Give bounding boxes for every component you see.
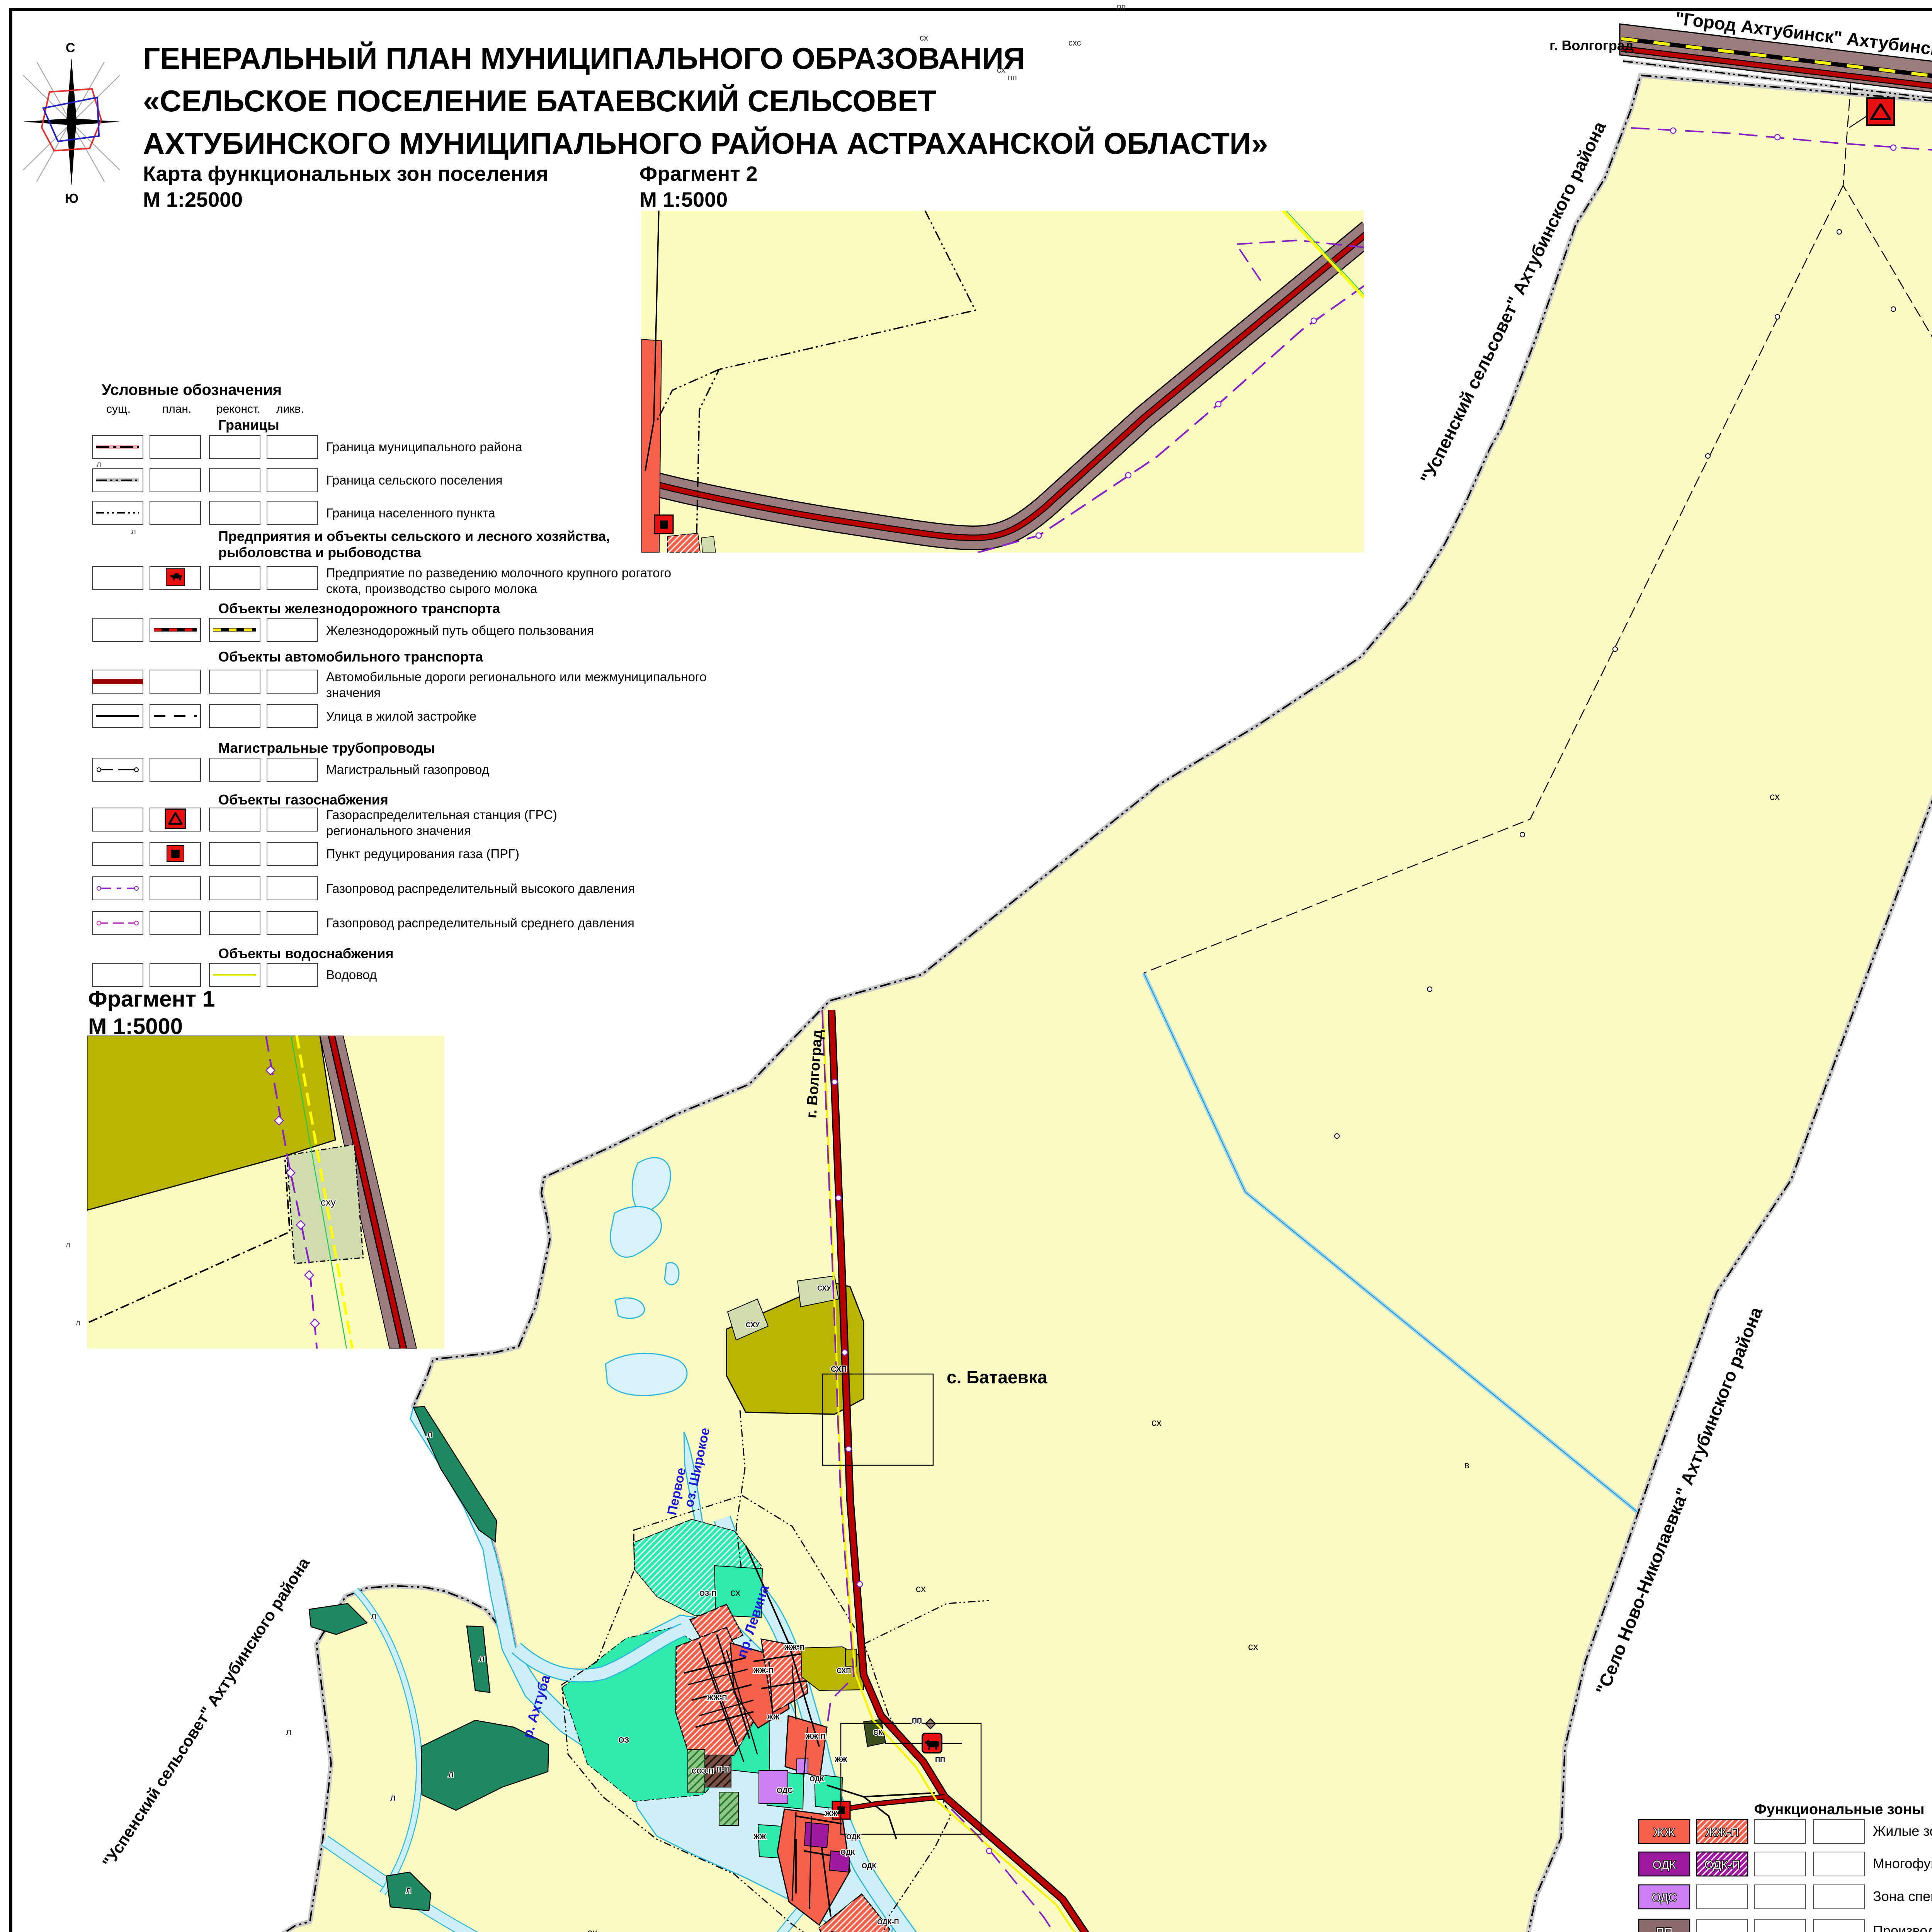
svg-text:Зона специализированной общест: Зона специализированной общественной зас… (1873, 1888, 1932, 1904)
svg-text:ОДК: ОДК (1653, 1859, 1676, 1871)
svg-text:рыболовства и рыбоводства: рыболовства и рыбоводства (218, 544, 422, 560)
svg-text:СХУ: СХУ (817, 1284, 831, 1292)
svg-text:Газораспределительная станция: Газораспределительная станция (ГРС) (326, 808, 557, 822)
svg-text:сх: сх (1770, 791, 1780, 802)
svg-text:сх: сх (920, 33, 928, 43)
svg-text:ЖЖ-П: ЖЖ-П (805, 1733, 825, 1740)
svg-text:ОДК: ОДК (846, 1833, 861, 1841)
svg-text:пп: пп (1008, 73, 1017, 82)
svg-text:сх: сх (1151, 1417, 1162, 1428)
svg-text:Фрагмент 2: Фрагмент 2 (639, 162, 758, 185)
svg-text:Условные обозначения: Условные обозначения (102, 381, 282, 398)
svg-text:Предприятие по разведению моло: Предприятие по разведению молочного круп… (326, 566, 671, 580)
svg-text:сущ.: сущ. (106, 403, 131, 415)
svg-text:ЖЖ: ЖЖ (767, 1713, 780, 1721)
svg-text:АХТУБИНСКОГО МУНИЦИПАЛЬНОГО РА: АХТУБИНСКОГО МУНИЦИПАЛЬНОГО РАЙОНА АСТРА… (143, 126, 1268, 160)
svg-text:сху: сху (321, 1196, 336, 1208)
svg-text:Жилые зоны: Жилые зоны (1873, 1823, 1932, 1839)
svg-text:Многофункциональная общественн: Многофункциональная общественно-деловая … (1873, 1855, 1932, 1871)
svg-text:ОДК: ОДК (810, 1775, 825, 1783)
svg-text:Водовод: Водовод (326, 968, 377, 982)
svg-text:регионального значения: регионального значения (326, 823, 471, 838)
svg-text:Производственные зоны, зоны ин: Производственные зоны, зоны инженерной и… (1873, 1923, 1932, 1932)
svg-text:Объекты железнодорожного транс: Объекты железнодорожного транспорта (218, 600, 500, 616)
svg-text:СХП: СХП (831, 1365, 847, 1374)
svg-text:Предприятия и объекты сельског: Предприятия и объекты сельского и лесног… (218, 528, 610, 544)
svg-text:г. Волгоград: г. Волгоград (1549, 37, 1634, 53)
svg-text:сх: сх (730, 1587, 740, 1598)
svg-text:сх: сх (587, 1927, 597, 1932)
svg-text:ЖЖ: ЖЖ (1653, 1826, 1675, 1839)
svg-text:сх: сх (997, 65, 1005, 75)
svg-text:Улица в жилой застройке: Улица в жилой застройке (326, 709, 476, 723)
svg-text:л: л (406, 1885, 411, 1896)
svg-text:СОЗ-П: СОЗ-П (692, 1767, 714, 1775)
svg-text:Объекты автомобильного транспо: Объекты автомобильного транспорта (218, 649, 483, 665)
svg-text:М 1:5000: М 1:5000 (639, 188, 728, 211)
svg-text:л: л (479, 1653, 485, 1664)
svg-text:Железнодорожный путь общего по: Железнодорожный путь общего пользования (326, 623, 594, 638)
svg-text:ЖЖ: ЖЖ (834, 1756, 847, 1764)
svg-text:ОДС: ОДС (1652, 1891, 1677, 1904)
svg-text:С: С (66, 41, 75, 55)
svg-text:СХП: СХП (837, 1667, 851, 1675)
svg-text:л: л (66, 1241, 70, 1249)
svg-text:ЖЖ-П: ЖЖ-П (1706, 1826, 1739, 1839)
svg-text:ОЗ: ОЗ (618, 1736, 629, 1745)
svg-text:ПП: ПП (1656, 1926, 1672, 1932)
svg-text:ОДК: ОДК (840, 1849, 855, 1856)
svg-text:М 1:5000: М 1:5000 (88, 1014, 183, 1039)
svg-text:ПП: ПП (935, 1756, 945, 1764)
svg-text:Фрагмент 1: Фрагмент 1 (88, 986, 215, 1012)
svg-text:СХУ: СХУ (746, 1321, 760, 1329)
svg-text:л: л (131, 527, 136, 536)
svg-text:ОДК-П: ОДК-П (877, 1918, 899, 1926)
svg-text:М 1:25000: М 1:25000 (143, 188, 243, 211)
svg-text:Пункт редуцирования газа (ПРГ): Пункт редуцирования газа (ПРГ) (326, 847, 519, 861)
svg-text:ЖЖ-П: ЖЖ-П (784, 1644, 804, 1651)
svg-text:с. Батаевка: с. Батаевка (947, 1367, 1048, 1387)
svg-text:ЖЖ: ЖЖ (825, 1810, 838, 1818)
svg-text:ликв.: ликв. (276, 403, 304, 415)
svg-text:ЖЖ: ЖЖ (753, 1833, 766, 1841)
svg-text:ОДК-П: ОДК-П (1704, 1859, 1740, 1871)
svg-text:л: л (286, 1727, 291, 1737)
svg-text:Карта функциональных зон посел: Карта функциональных зон поселения (143, 162, 548, 185)
svg-text:ОДК: ОДК (862, 1862, 877, 1870)
svg-text:реконст.: реконст. (216, 403, 260, 415)
svg-text:сх: сх (1248, 1641, 1258, 1652)
svg-text:пп: пп (1117, 2, 1126, 12)
svg-text:л: л (76, 1319, 80, 1327)
svg-text:значения: значения (326, 685, 381, 700)
svg-text:ОЗ-П: ОЗ-П (699, 1590, 716, 1597)
svg-text:сх: сх (916, 1583, 926, 1594)
svg-text:Ю: Ю (65, 191, 78, 206)
svg-text:Граница сельского поселения: Граница сельского поселения (326, 473, 503, 487)
svg-text:"Успенский сельсовет" Ахтубинс: "Успенский сельсовет" Ахтубинского район… (99, 1554, 313, 1871)
svg-text:«СЕЛЬСКОЕ ПОСЕЛЕНИЕ БАТАЕВСКИЙ: «СЕЛЬСКОЕ ПОСЕЛЕНИЕ БАТАЕВСКИЙ СЕЛЬСОВЕТ (143, 84, 936, 118)
svg-text:Функциональные зоны: Функциональные зоны (1754, 1801, 1925, 1818)
svg-text:Граница муниципального района: Граница муниципального района (326, 440, 522, 454)
svg-text:ЖЖ-П: ЖЖ-П (753, 1667, 773, 1675)
svg-text:ОДС: ОДС (777, 1787, 793, 1795)
svg-text:Объекты водоснабжения: Объекты водоснабжения (218, 946, 393, 961)
svg-text:л: л (427, 1429, 432, 1440)
svg-text:скота, производство сырого мол: скота, производство сырого молока (326, 582, 537, 596)
svg-text:П-П: П-П (717, 1765, 729, 1773)
svg-text:Газопровод распределительный с: Газопровод распределительный среднего да… (326, 916, 634, 930)
svg-text:Объекты газоснабжения: Объекты газоснабжения (218, 792, 388, 808)
svg-text:Автомобильные дороги региональ: Автомобильные дороги регионального или м… (326, 670, 707, 684)
svg-text:л: л (390, 1793, 396, 1803)
svg-text:СК: СК (873, 1729, 883, 1736)
svg-text:Магистральный газопровод: Магистральный газопровод (326, 762, 489, 777)
svg-text:ПП: ПП (912, 1717, 922, 1725)
svg-text:схс: схс (1068, 38, 1081, 48)
svg-text:Границы: Границы (218, 417, 279, 433)
svg-text:л: л (371, 1611, 376, 1621)
svg-text:план.: план. (162, 403, 191, 415)
svg-text:ГЕНЕРАЛЬНЫЙ ПЛАН МУНИЦИПАЛЬНОГ: ГЕНЕРАЛЬНЫЙ ПЛАН МУНИЦИПАЛЬНОГО ОБРАЗОВА… (143, 41, 1025, 75)
svg-text:ЖЖ-П: ЖЖ-П (707, 1694, 727, 1702)
svg-text:Граница населенного пункта: Граница населенного пункта (326, 506, 496, 520)
svg-text:л: л (97, 460, 101, 469)
svg-text:в: в (1464, 1460, 1469, 1471)
svg-text:л: л (448, 1769, 454, 1780)
svg-text:Магистральные трубопроводы: Магистральные трубопроводы (218, 740, 435, 756)
svg-text:Газопровод распределительный в: Газопровод распределительный высокого да… (326, 881, 635, 896)
